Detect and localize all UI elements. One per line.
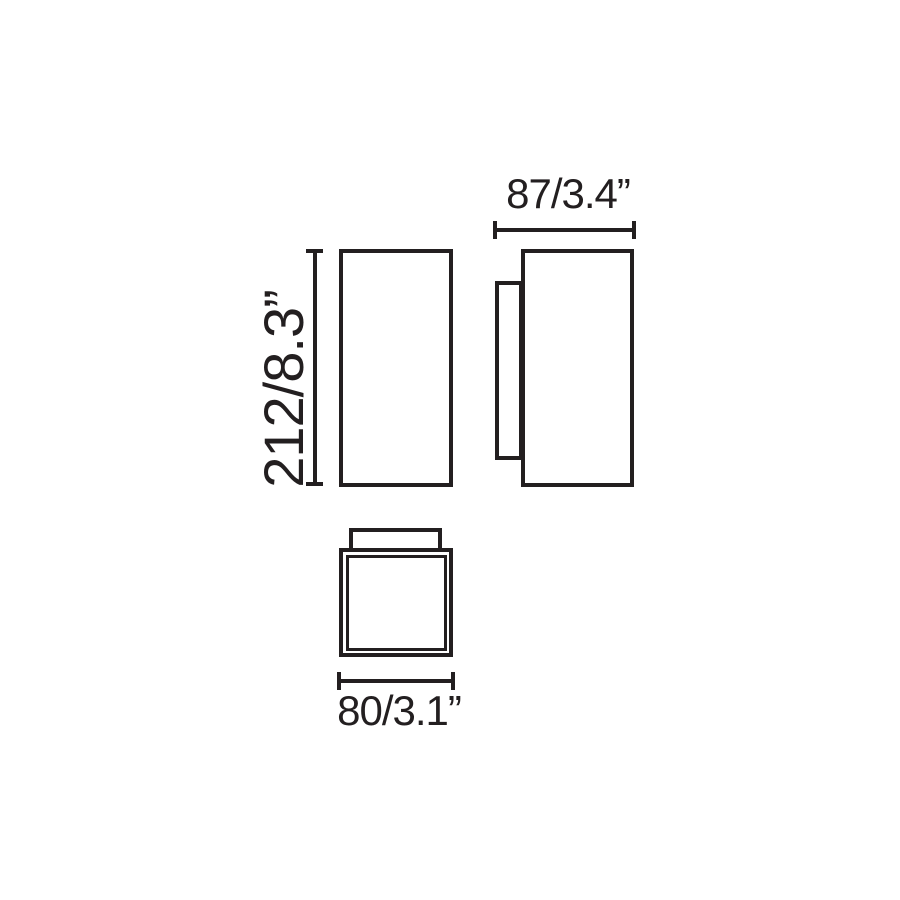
dimension-diagram: 212/8.3” 87/3.4” 80/3.1” — [0, 0, 900, 900]
side-view-body-outline — [521, 249, 634, 487]
top-view-inner-outline — [346, 555, 447, 651]
front-view-outline — [339, 249, 453, 487]
height-dimension-label: 212/8.3” — [256, 290, 312, 488]
side-view-mount-plate-outline — [495, 281, 523, 460]
depth-dimension-left-tick — [493, 221, 497, 239]
depth-dimension-label: 87/3.4” — [506, 173, 630, 215]
depth-dimension-right-tick — [632, 221, 636, 239]
width-dimension-label: 80/3.1” — [337, 690, 461, 732]
height-dimension-top-tick — [306, 249, 323, 253]
width-dimension-line — [337, 679, 455, 683]
depth-dimension-line — [493, 228, 636, 232]
